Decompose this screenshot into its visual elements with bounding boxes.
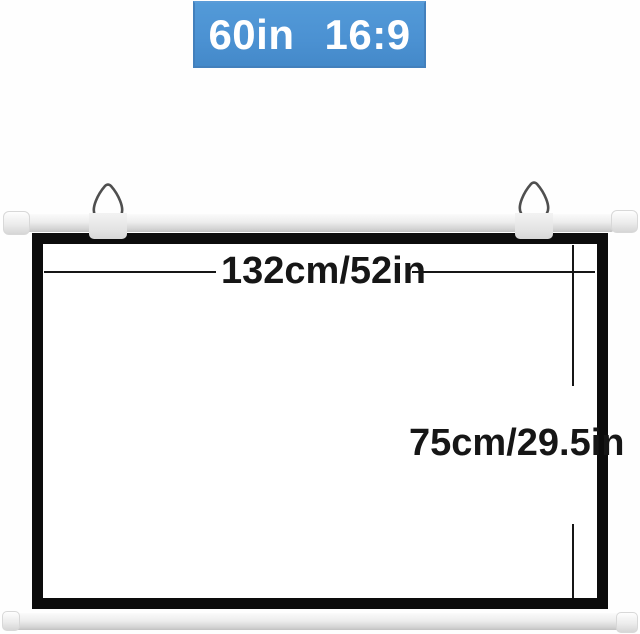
hook-bracket: [89, 213, 127, 239]
projector-screen-product-image: 60in 16:9 132cm/52in 75cm/29.5in: [0, 0, 640, 634]
hook-bracket: [515, 213, 553, 239]
top-bar-right-end-cap: [611, 210, 638, 233]
height-dimension-label: 75cm/29.5in: [409, 424, 624, 462]
hanging-hook-icon: [514, 180, 554, 214]
hanging-hook-icon: [88, 182, 128, 216]
top-bar-left-end-cap: [3, 211, 30, 235]
bottom-weight-bar: [16, 613, 618, 630]
width-dimension-line-right: [412, 271, 595, 273]
height-dimension-line-top: [572, 245, 574, 386]
width-dimension-line-left: [44, 271, 216, 273]
badge-aspect-ratio-label: 16:9: [324, 11, 410, 59]
height-dimension-line-bottom: [572, 524, 574, 598]
bottom-bar-left-end-cap: [2, 611, 20, 631]
badge-size-label: 60in: [208, 11, 294, 59]
size-badge: 60in 16:9: [193, 1, 426, 68]
width-dimension-label: 132cm/52in: [221, 252, 426, 290]
bottom-bar-right-end-cap: [616, 612, 638, 633]
